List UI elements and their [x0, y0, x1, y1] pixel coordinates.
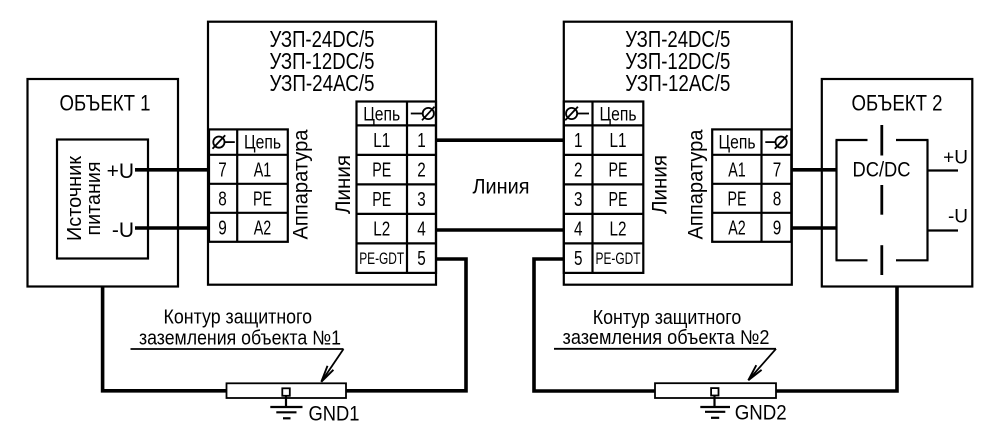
svg-text:А1: А1: [254, 159, 272, 181]
svg-text:РЕ: РЕ: [372, 189, 391, 211]
svg-text:7: 7: [218, 159, 227, 181]
svg-text:Линия: Линия: [648, 155, 672, 214]
svg-text:Контур защитного: Контур защитного: [164, 307, 313, 329]
svg-text:питания: питания: [83, 162, 105, 236]
svg-text:8: 8: [773, 188, 782, 210]
svg-text:5: 5: [417, 248, 426, 270]
svg-text:4: 4: [417, 219, 426, 241]
svg-text:А2: А2: [254, 217, 272, 239]
svg-text:РЕ: РЕ: [728, 188, 747, 210]
svg-text:-U: -U: [948, 207, 968, 228]
svg-text:3: 3: [574, 189, 583, 211]
svg-text:2: 2: [574, 160, 583, 182]
svg-text:L2: L2: [373, 219, 390, 241]
svg-text:Цепь: Цепь: [600, 105, 637, 126]
svg-text:PE-GDT: PE-GDT: [359, 249, 404, 268]
svg-text:РЕ: РЕ: [609, 160, 628, 182]
svg-text:Аппаратура: Аппаратура: [684, 129, 708, 239]
svg-text:2: 2: [417, 160, 426, 182]
svg-text:GND1: GND1: [309, 403, 360, 426]
svg-text:А1: А1: [728, 159, 746, 181]
svg-text:УЗП-12АС/5: УЗП-12АС/5: [625, 70, 730, 96]
svg-text:Цепь: Цепь: [363, 105, 400, 126]
svg-text:Аппаратура: Аппаратура: [289, 129, 313, 239]
svg-text:+U: +U: [107, 160, 134, 183]
svg-text:GND2: GND2: [735, 402, 787, 425]
svg-text:РЕ: РЕ: [253, 188, 272, 210]
svg-text:Линия: Линия: [473, 176, 530, 199]
svg-text:УЗП-24АС/5: УЗП-24АС/5: [270, 70, 375, 96]
svg-text:А2: А2: [728, 217, 746, 239]
svg-text:1: 1: [417, 130, 426, 152]
svg-text:ОБЪЕКТ 1: ОБЪЕКТ 1: [60, 91, 151, 116]
svg-text:3: 3: [417, 189, 426, 211]
svg-text:9: 9: [773, 217, 782, 239]
svg-text:9: 9: [218, 217, 227, 239]
svg-text:ОБЪЕКТ 2: ОБЪЕКТ 2: [852, 91, 943, 116]
svg-text:РЕ: РЕ: [609, 189, 628, 211]
svg-text:+U: +U: [943, 148, 968, 169]
svg-text:Контур защитного: Контур защитного: [593, 307, 742, 329]
svg-text:4: 4: [574, 219, 583, 241]
svg-text:L2: L2: [610, 219, 627, 241]
svg-text:1: 1: [574, 130, 583, 152]
svg-text:-U: -U: [112, 219, 134, 242]
svg-text:8: 8: [218, 188, 227, 210]
svg-text:Цепь: Цепь: [244, 133, 281, 154]
svg-text:заземления объекта №2: заземления объекта №2: [563, 327, 770, 349]
svg-text:РЕ: РЕ: [372, 160, 391, 182]
svg-text:PE-GDT: PE-GDT: [596, 249, 641, 268]
svg-text:5: 5: [574, 248, 583, 270]
svg-text:заземления объекта №1: заземления объекта №1: [139, 328, 341, 350]
svg-text:DC/DC: DC/DC: [853, 159, 911, 182]
svg-text:Цепь: Цепь: [719, 133, 756, 154]
svg-text:L1: L1: [373, 130, 390, 152]
svg-text:7: 7: [773, 159, 782, 181]
svg-text:L1: L1: [610, 130, 627, 152]
svg-text:Линия: Линия: [331, 155, 355, 214]
